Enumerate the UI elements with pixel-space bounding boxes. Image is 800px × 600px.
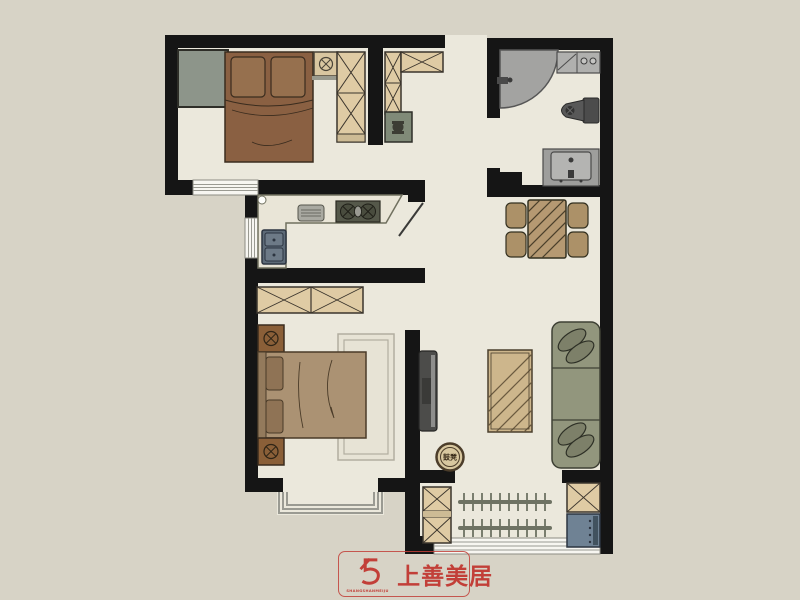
wall — [600, 38, 613, 554]
kitchen-window — [245, 218, 258, 258]
blue-cabinet — [567, 514, 600, 547]
chair — [506, 232, 526, 257]
gas-stove — [336, 201, 380, 222]
double-bed — [225, 52, 313, 162]
wall — [245, 268, 425, 283]
drum-stool: 鼓凳 — [437, 444, 464, 471]
pillow — [266, 400, 283, 433]
nightstand — [258, 325, 284, 352]
wall — [408, 180, 425, 202]
bedroom-window — [193, 180, 258, 195]
chair — [568, 203, 588, 228]
wall — [487, 38, 613, 50]
cutting-board — [298, 205, 324, 221]
wardrobe — [257, 287, 363, 313]
nightstand — [312, 52, 340, 80]
wall — [562, 470, 600, 483]
wall-tv — [419, 351, 437, 431]
floor-plan: 鼓凳 — [0, 0, 800, 600]
chair — [506, 203, 526, 228]
vanity-sink — [557, 52, 600, 73]
top-cabinet — [401, 52, 443, 72]
wall — [487, 172, 522, 185]
sofa — [552, 322, 600, 468]
pillow — [231, 57, 265, 97]
gas-point — [258, 196, 266, 204]
wall — [245, 268, 258, 492]
nightstand — [258, 438, 284, 465]
desk-with-chair — [385, 112, 412, 142]
wall — [165, 35, 445, 48]
chair — [568, 232, 588, 257]
wardrobe — [337, 52, 365, 142]
double-bed — [258, 352, 366, 438]
logo-subtext: SHANGSHANMEIJU — [346, 589, 388, 593]
pillow — [271, 57, 305, 97]
green-cabinet — [178, 50, 228, 107]
bay-window — [277, 478, 384, 515]
storage-cabinet — [423, 487, 451, 543]
wall — [368, 48, 383, 145]
brand-logo: SHANGSHANMEIJU 上善美居 — [338, 551, 470, 597]
master-bedroom — [257, 287, 366, 465]
storage-cabinet — [567, 483, 600, 512]
tall-cabinet — [385, 52, 401, 114]
wall — [378, 478, 420, 492]
wall — [165, 35, 178, 193]
wall — [405, 330, 420, 554]
shower-handle — [497, 77, 508, 84]
pillow — [266, 357, 283, 390]
washing-machine — [543, 149, 599, 186]
double-sink — [262, 230, 286, 264]
wall — [245, 478, 283, 492]
wall — [420, 470, 455, 483]
wall — [487, 185, 613, 197]
drum-stool-label: 鼓凳 — [443, 453, 458, 462]
